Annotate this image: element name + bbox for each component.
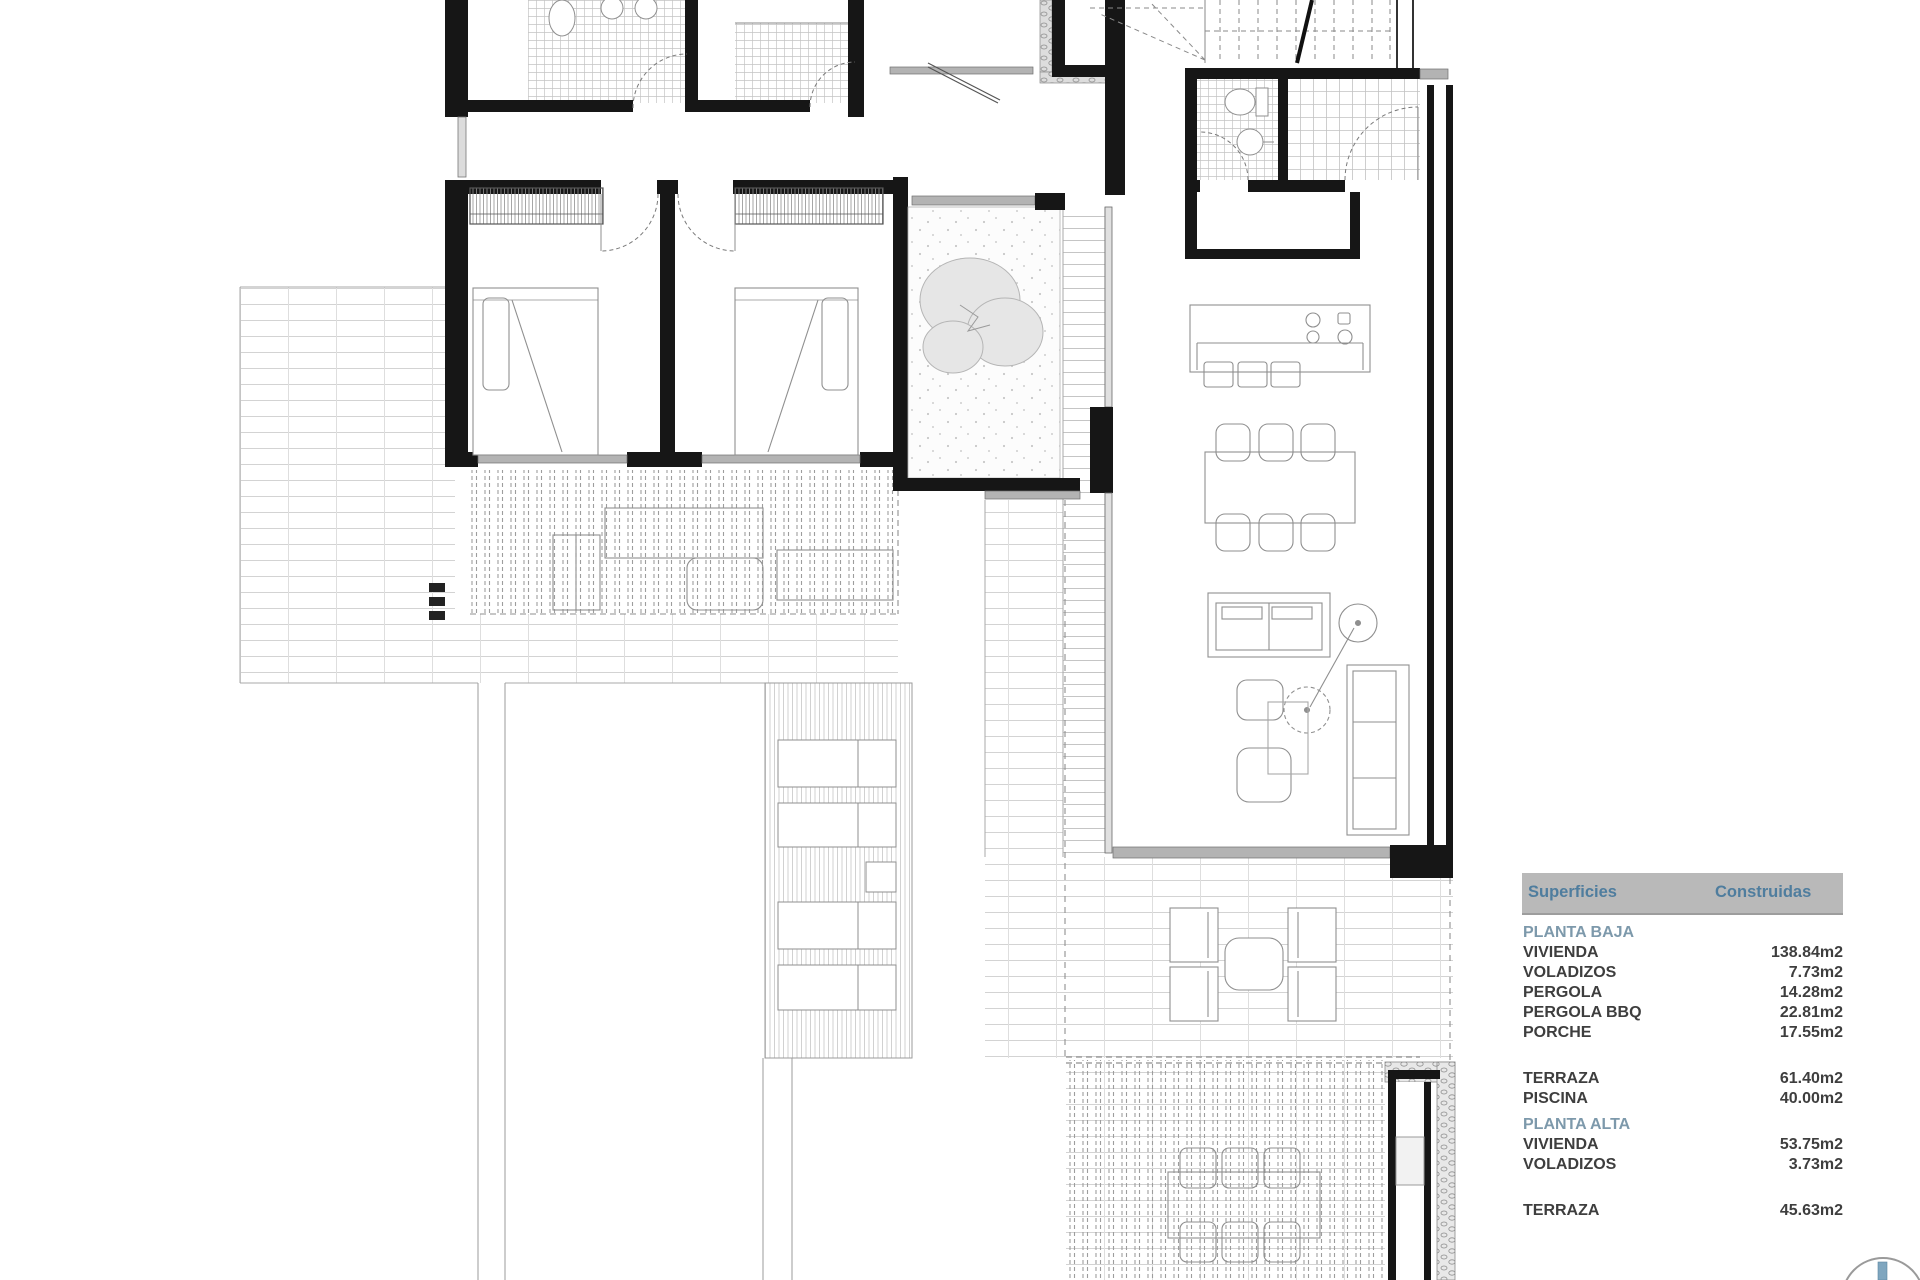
legend-row: PORCHE17.55m2	[1522, 1023, 1843, 1043]
bbq-marks	[429, 583, 445, 620]
surface-legend: Superficies Construidas PLANTA BAJAVIVIE…	[1522, 873, 1843, 1221]
legend-row: VIVIENDA53.75m2	[1522, 1135, 1843, 1155]
courtyard	[893, 193, 1080, 499]
legend-row-label: VOLADIZOS	[1523, 1155, 1616, 1175]
sun-deck	[765, 683, 912, 1058]
legend-header-col2: Construidas	[1715, 883, 1811, 902]
legend-row-value: 45.63m2	[1780, 1201, 1843, 1221]
legend-row: PLANTA ALTA	[1522, 1115, 1843, 1135]
legend-row: TERRAZA45.63m2	[1522, 1201, 1843, 1221]
legend-row-value: 53.75m2	[1780, 1135, 1843, 1155]
legend-header-bar: Superficies Construidas	[1522, 873, 1843, 915]
legend-spacer	[1522, 1175, 1843, 1201]
pergola-bbq	[1066, 1057, 1420, 1280]
legend-row-label: VOLADIZOS	[1523, 963, 1616, 983]
pool	[1385, 1062, 1455, 1280]
legend-row-value: 3.73m2	[1789, 1155, 1843, 1175]
legend-header-col1: Superficies	[1528, 883, 1617, 902]
legend-row: VOLADIZOS3.73m2	[1522, 1155, 1843, 1175]
legend-rows: PLANTA BAJAVIVIENDA138.84m2VOLADIZOS7.73…	[1522, 923, 1843, 1221]
legend-row: PISCINA40.00m2	[1522, 1089, 1843, 1109]
legend-row-value: 14.28m2	[1780, 983, 1843, 1003]
legend-row-value: 17.55m2	[1780, 1023, 1843, 1043]
legend-row-label: PERGOLA BBQ	[1523, 1003, 1642, 1023]
legend-row: VOLADIZOS7.73m2	[1522, 963, 1843, 983]
legend-row-label: PISCINA	[1523, 1089, 1588, 1109]
pool-step	[1396, 1137, 1424, 1185]
legend-row-label: PLANTA BAJA	[1523, 923, 1634, 943]
legend-row-value: 22.81m2	[1780, 1003, 1843, 1023]
legend-row-label: PERGOLA	[1523, 983, 1602, 1003]
legend-row-value: 7.73m2	[1789, 963, 1843, 983]
legend-row-value: 61.40m2	[1780, 1069, 1843, 1089]
legend-row-label: TERRAZA	[1523, 1069, 1599, 1089]
legend-row: PLANTA BAJA	[1522, 923, 1843, 943]
legend-row: VIVIENDA138.84m2	[1522, 943, 1843, 963]
legend-row-label: VIVIENDA	[1523, 1135, 1599, 1155]
sliding-door-sill	[1113, 847, 1390, 858]
legend-row: PERGOLA14.28m2	[1522, 983, 1843, 1003]
pergola	[429, 470, 898, 620]
legend-row-label: VIVIENDA	[1523, 943, 1599, 963]
floor-plan-sheet: Superficies Construidas PLANTA BAJAVIVIE…	[0, 0, 1920, 1280]
legend-row-label: PORCHE	[1523, 1023, 1591, 1043]
legend-row: TERRAZA61.40m2	[1522, 1069, 1843, 1089]
legend-row-label: TERRAZA	[1523, 1201, 1599, 1221]
legend-spacer	[1522, 1043, 1843, 1069]
legend-row: PERGOLA BBQ22.81m2	[1522, 1003, 1843, 1023]
legend-row-label: PLANTA ALTA	[1523, 1115, 1630, 1135]
corridor-window	[458, 117, 466, 177]
legend-row-value: 40.00m2	[1780, 1089, 1843, 1109]
legend-row-value: 138.84m2	[1771, 943, 1843, 963]
